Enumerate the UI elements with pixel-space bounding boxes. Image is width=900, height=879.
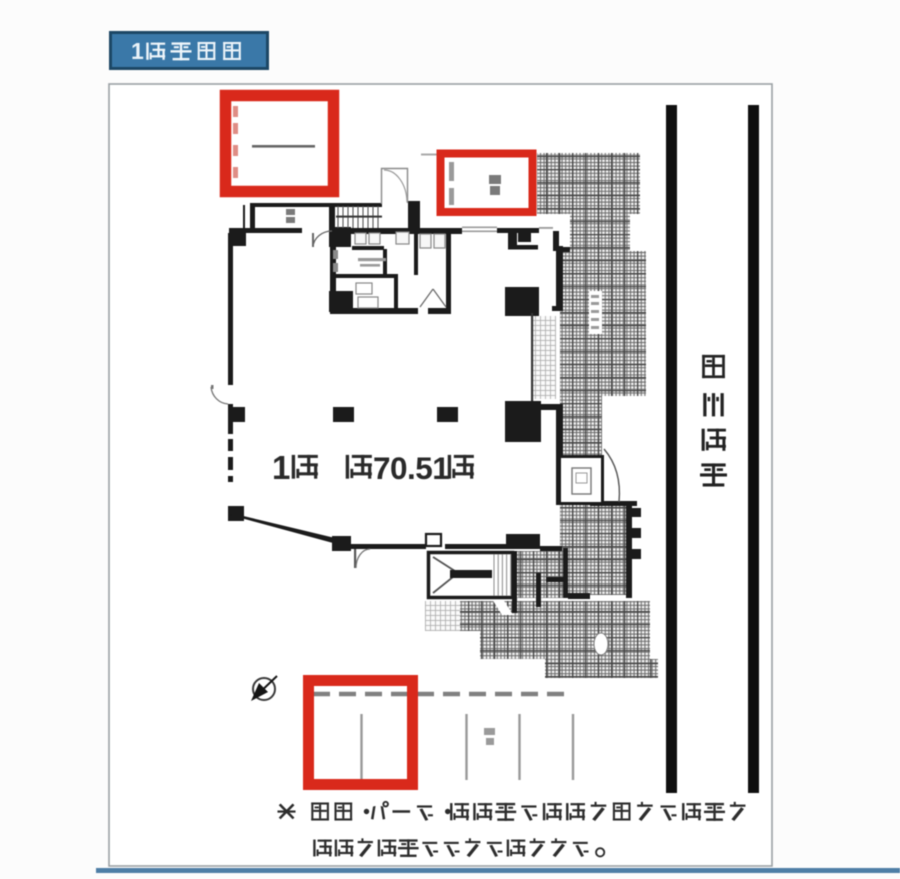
svg-text:1: 1 xyxy=(131,38,144,64)
svg-text:70.51: 70.51 xyxy=(373,450,449,486)
svg-text:1: 1 xyxy=(272,449,290,486)
